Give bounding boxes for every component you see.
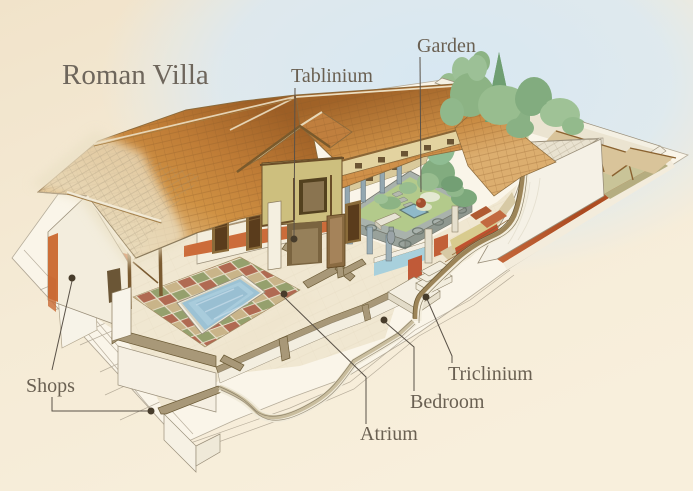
svg-text:Triclinium: Triclinium xyxy=(448,363,533,385)
svg-text:Tablinium: Tablinium xyxy=(291,65,373,87)
svg-text:Atrium: Atrium xyxy=(360,423,418,445)
svg-text:Garden: Garden xyxy=(417,35,476,57)
svg-text:Bedroom: Bedroom xyxy=(410,391,485,413)
svg-text:Shops: Shops xyxy=(26,375,75,397)
svg-text:Roman Villa: Roman Villa xyxy=(62,59,209,91)
